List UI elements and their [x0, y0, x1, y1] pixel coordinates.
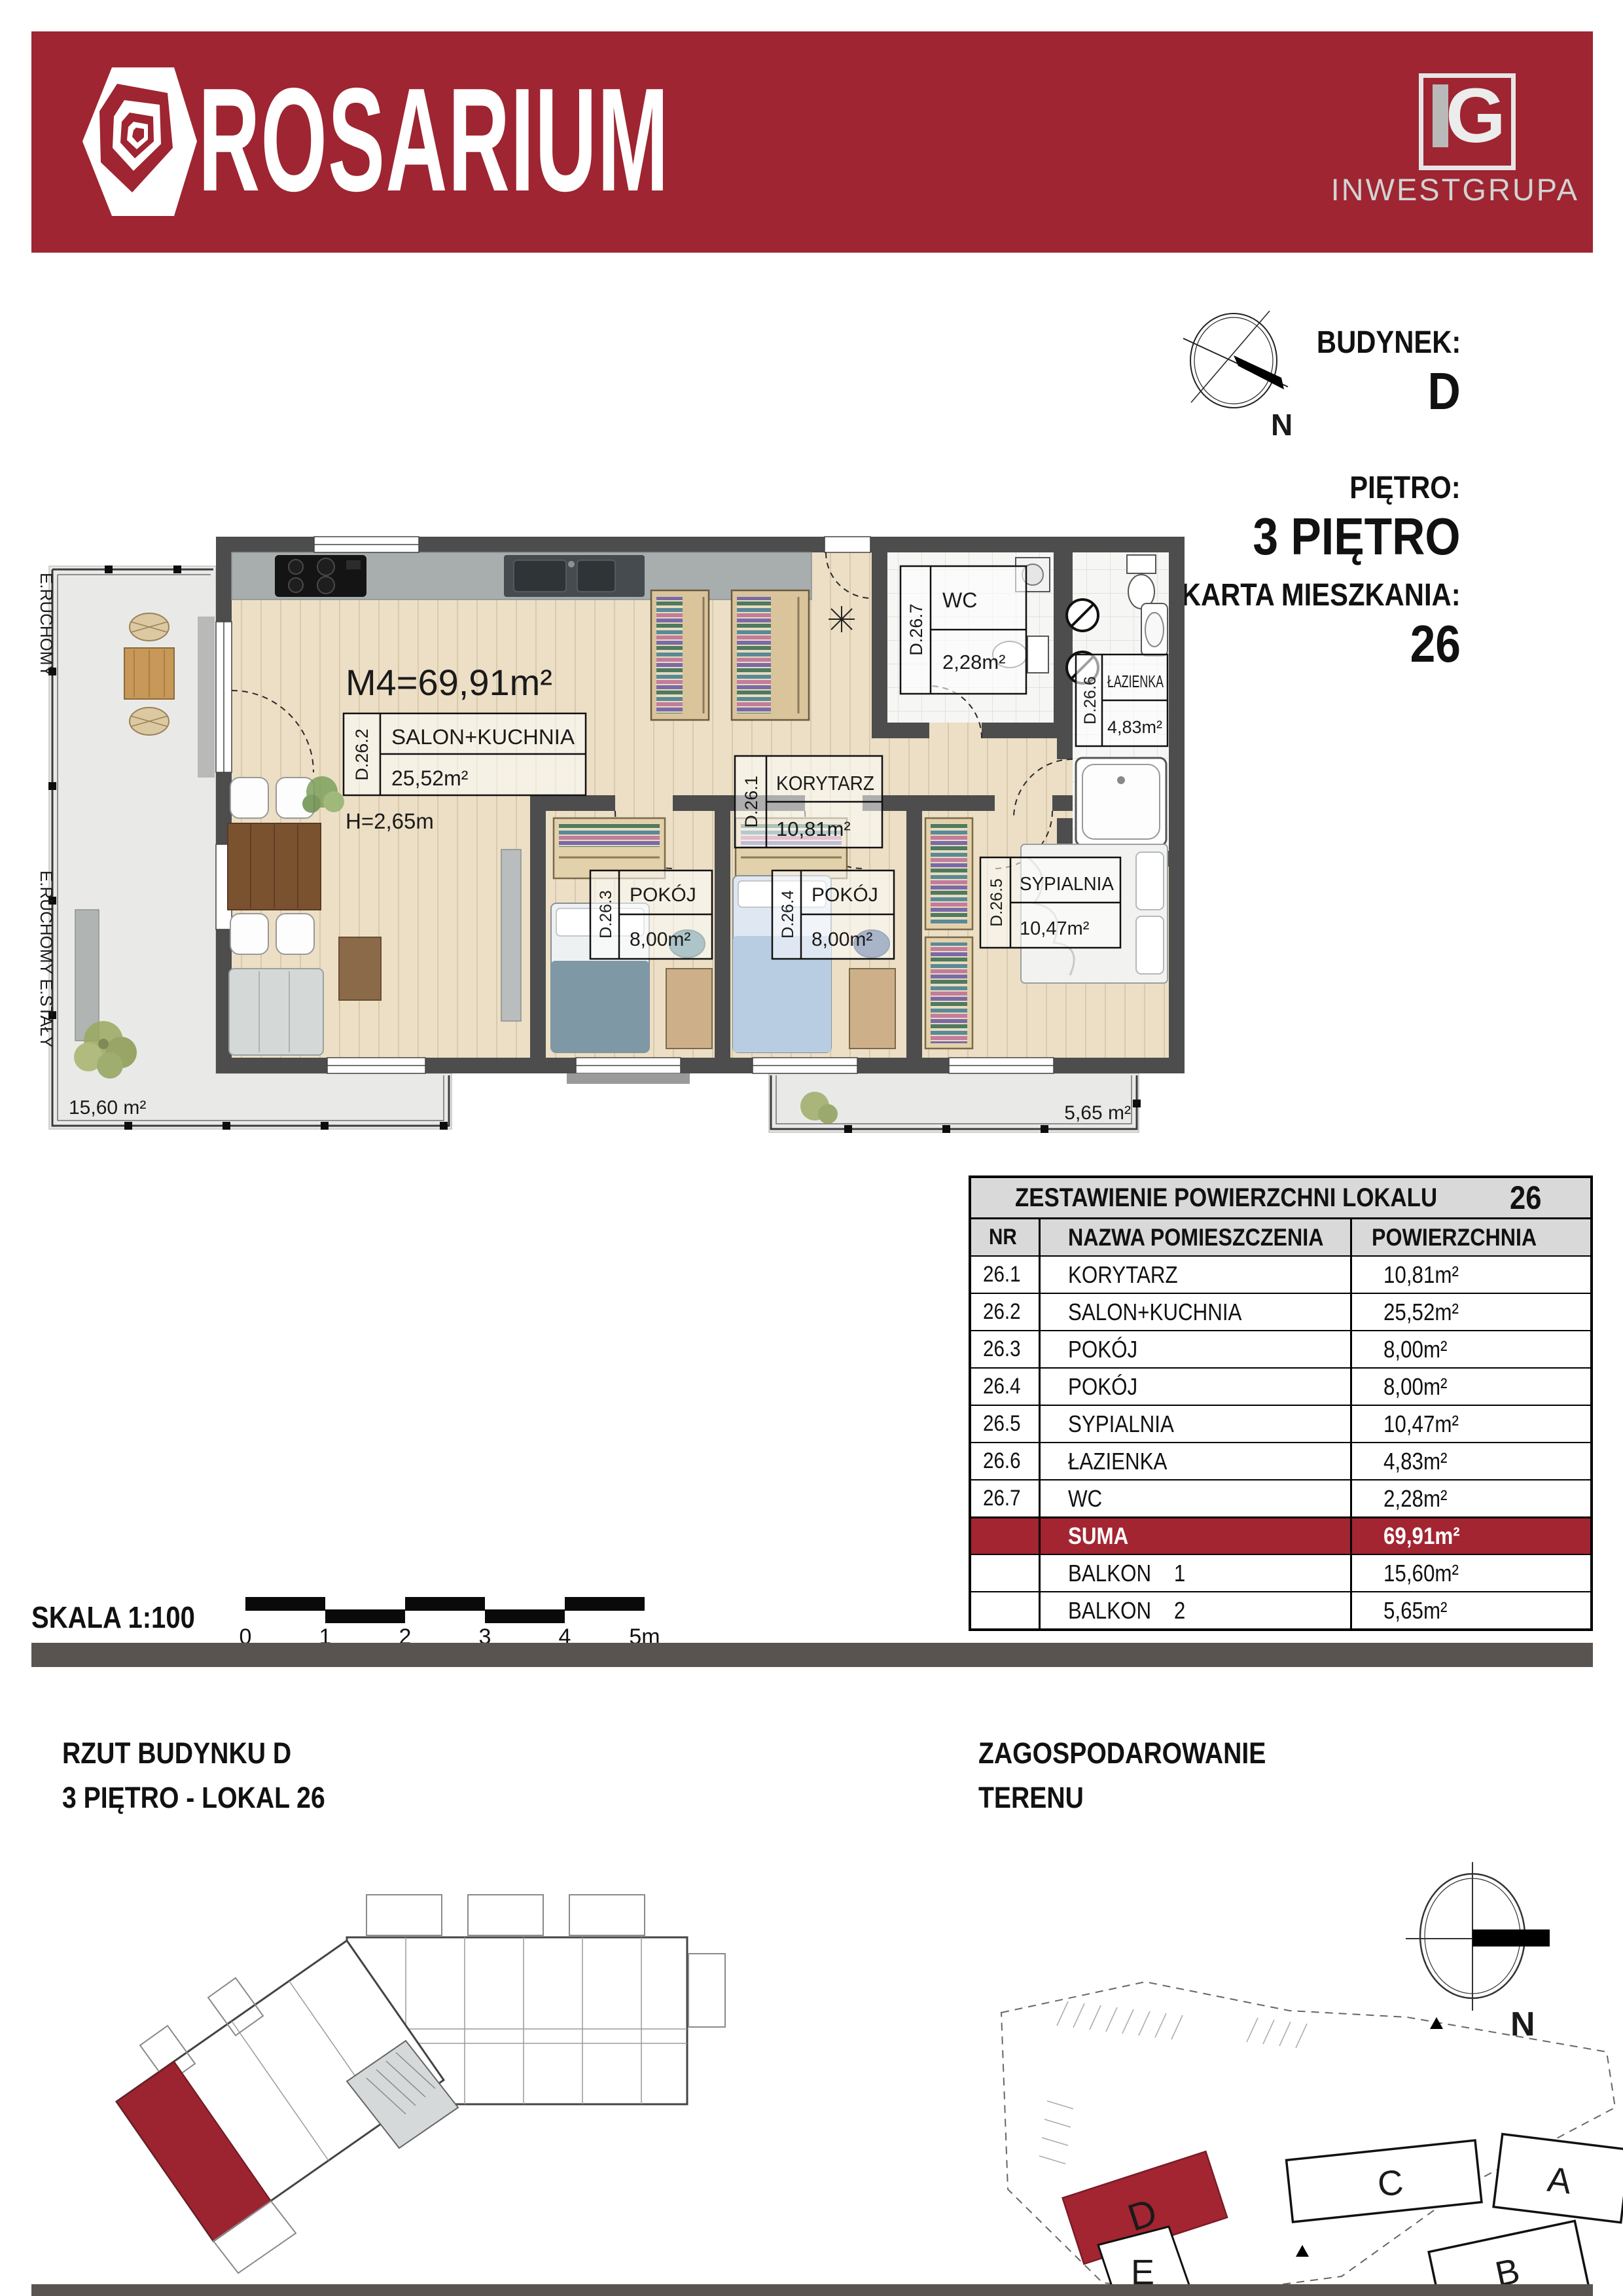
svg-text:D.26.1: D.26.1 — [741, 776, 761, 828]
svg-text:10,81m²: 10,81m² — [776, 817, 851, 840]
compass-icon-bottom: N — [1406, 1862, 1550, 2043]
building-floor-plan — [39, 1833, 733, 2291]
balcony-2-area: 5,65 m² — [1064, 1102, 1131, 1124]
svg-text:KORYTARZ: KORYTARZ — [776, 772, 874, 795]
plan-height-label: H=2,65m — [346, 809, 434, 833]
table-row: 26.1 KORYTARZ 10,81m² — [971, 1255, 1590, 1293]
table-title-row: ZESTAWIENIE POWIERZCHNI LOKALU 26 — [971, 1178, 1590, 1217]
site-plan-title-1: ZAGOSPODAROWANIE — [978, 1738, 1309, 1768]
brand-wordmark: ROSARIUM — [198, 66, 669, 213]
room-label-sypialnia: D.26.5 SYPIALNIA 10,47m² — [980, 857, 1120, 948]
building-plan-title-1: RZUT BUDYNKU D — [62, 1738, 325, 1768]
svg-text:D.26.6: D.26.6 — [1081, 676, 1099, 725]
company-name: INWESTGRUPA — [1243, 171, 1579, 207]
svg-text:4,83m²: 4,83m² — [1107, 717, 1162, 737]
svg-text:POKÓJ: POKÓJ — [811, 884, 878, 906]
area-summary-table: ZESTAWIENIE POWIERZCHNI LOKALU 26 NR NAZ… — [969, 1175, 1593, 1631]
table-row: 26.5 SYPIALNIA 10,47m² — [971, 1405, 1590, 1442]
building-c: C — [1287, 2140, 1482, 2222]
wall-label-bottom: E.RUCHOMY E.STAŁY — [37, 870, 56, 1048]
svg-text:POKÓJ: POKÓJ — [630, 884, 696, 906]
building-label: BUDYNEK: — [1003, 325, 1461, 361]
room-label-lazienka: D.26.6 ŁAZIENKA 4,83m² — [1076, 655, 1168, 746]
svg-text:ŁAZIENKA: ŁAZIENKA — [1107, 672, 1164, 691]
rosarium-rose-icon — [76, 64, 197, 221]
table-suma-row: SUMA 69,91m² — [971, 1516, 1590, 1554]
room-label-pokoj-4: D.26.4 POKÓJ 8,00m² — [772, 870, 894, 959]
svg-text:SALON+KUCHNIA: SALON+KUCHNIA — [391, 725, 575, 749]
building-value: D — [1003, 361, 1461, 422]
svg-text:10,47m²: 10,47m² — [1020, 918, 1090, 939]
scale-bar: 0 1 2 3 4 5m — [245, 1597, 645, 1636]
table-balkon-row: BALKON 2 5,65m² — [971, 1591, 1590, 1628]
table-header-row: NR NAZWA POMIESZCZENIA POWIERZCHNIA — [971, 1217, 1590, 1255]
table-title: ZESTAWIENIE POWIERZCHNI LOKALU — [1015, 1183, 1437, 1213]
site-plan-title-2: TERENU — [978, 1783, 1099, 1812]
apartment-card-page: ROSARIUM G INWESTGRUPA N BUDYNEK: D PIĘT… — [0, 0, 1623, 2296]
table-row: 26.4 POKÓJ 8,00m² — [971, 1367, 1590, 1405]
room-label-korytarz: D.26.1 KORYTARZ 10,81m² — [735, 756, 882, 848]
building-plan-title-2: 3 PIĘTRO - LOKAL 26 — [62, 1783, 365, 1812]
footer-band — [31, 2284, 1593, 2296]
room-label-wc: D.26.7 WC 2,28m² — [901, 566, 1026, 694]
svg-text:D.26.5: D.26.5 — [988, 878, 1006, 927]
svg-text:D.26.7: D.26.7 — [906, 603, 926, 656]
building-a: A — [1493, 2134, 1623, 2223]
divider-band — [31, 1643, 1593, 1667]
wall-label-top: E.RUCHOMY — [37, 573, 56, 677]
svg-text:25,52m²: 25,52m² — [391, 766, 469, 790]
site-plan: N C A B D — [949, 1826, 1623, 2296]
ig-letter-g: G — [1446, 71, 1506, 160]
inwestgrupa-logo-icon: G — [1419, 73, 1516, 170]
scale-label: SKALA 1:100 — [31, 1600, 219, 1635]
table-row: 26.2 SALON+KUCHNIA 25,52m² — [971, 1293, 1590, 1330]
svg-text:D.26.2: D.26.2 — [352, 728, 372, 781]
table-row: 26.3 POKÓJ 8,00m² — [971, 1330, 1590, 1367]
svg-text:8,00m²: 8,00m² — [811, 929, 872, 950]
svg-text:SYPIALNIA: SYPIALNIA — [1020, 874, 1115, 895]
plan-total-label: M4=69,91m² — [346, 662, 552, 703]
table-title-number: 26 — [1510, 1179, 1541, 1217]
brand-header-bar: ROSARIUM — [31, 31, 1593, 253]
balcony-1-area: 15,60 m² — [69, 1097, 146, 1119]
svg-text:2,28m²: 2,28m² — [942, 651, 1005, 673]
balcony-2: 5,65 m² — [769, 1073, 1141, 1133]
svg-text:C: C — [1376, 2162, 1405, 2204]
svg-text:D.26.3: D.26.3 — [597, 890, 615, 939]
svg-text:WC: WC — [942, 588, 977, 612]
room-label-salon: D.26.2 SALON+KUCHNIA 25,52m² — [344, 713, 586, 795]
table-balkon-row: BALKON 1 15,60m² — [971, 1554, 1590, 1591]
lamp-symbol-icon — [829, 606, 855, 632]
svg-text:8,00m²: 8,00m² — [630, 929, 690, 950]
room-label-pokoj-3: D.26.3 POKÓJ 8,00m² — [590, 870, 712, 959]
table-row: 26.7 WC 2,28m² — [971, 1479, 1590, 1516]
table-row: 26.6 ŁAZIENKA 4,83m² — [971, 1442, 1590, 1479]
svg-text:D.26.4: D.26.4 — [779, 890, 797, 939]
kitchen-counter — [232, 552, 811, 600]
apartment-floor-plan: 15,60 m² E.RUCHOMY E.RUCHOMY E.STAŁY 5,6… — [26, 452, 1204, 1165]
svg-text:A: A — [1545, 2160, 1573, 2202]
